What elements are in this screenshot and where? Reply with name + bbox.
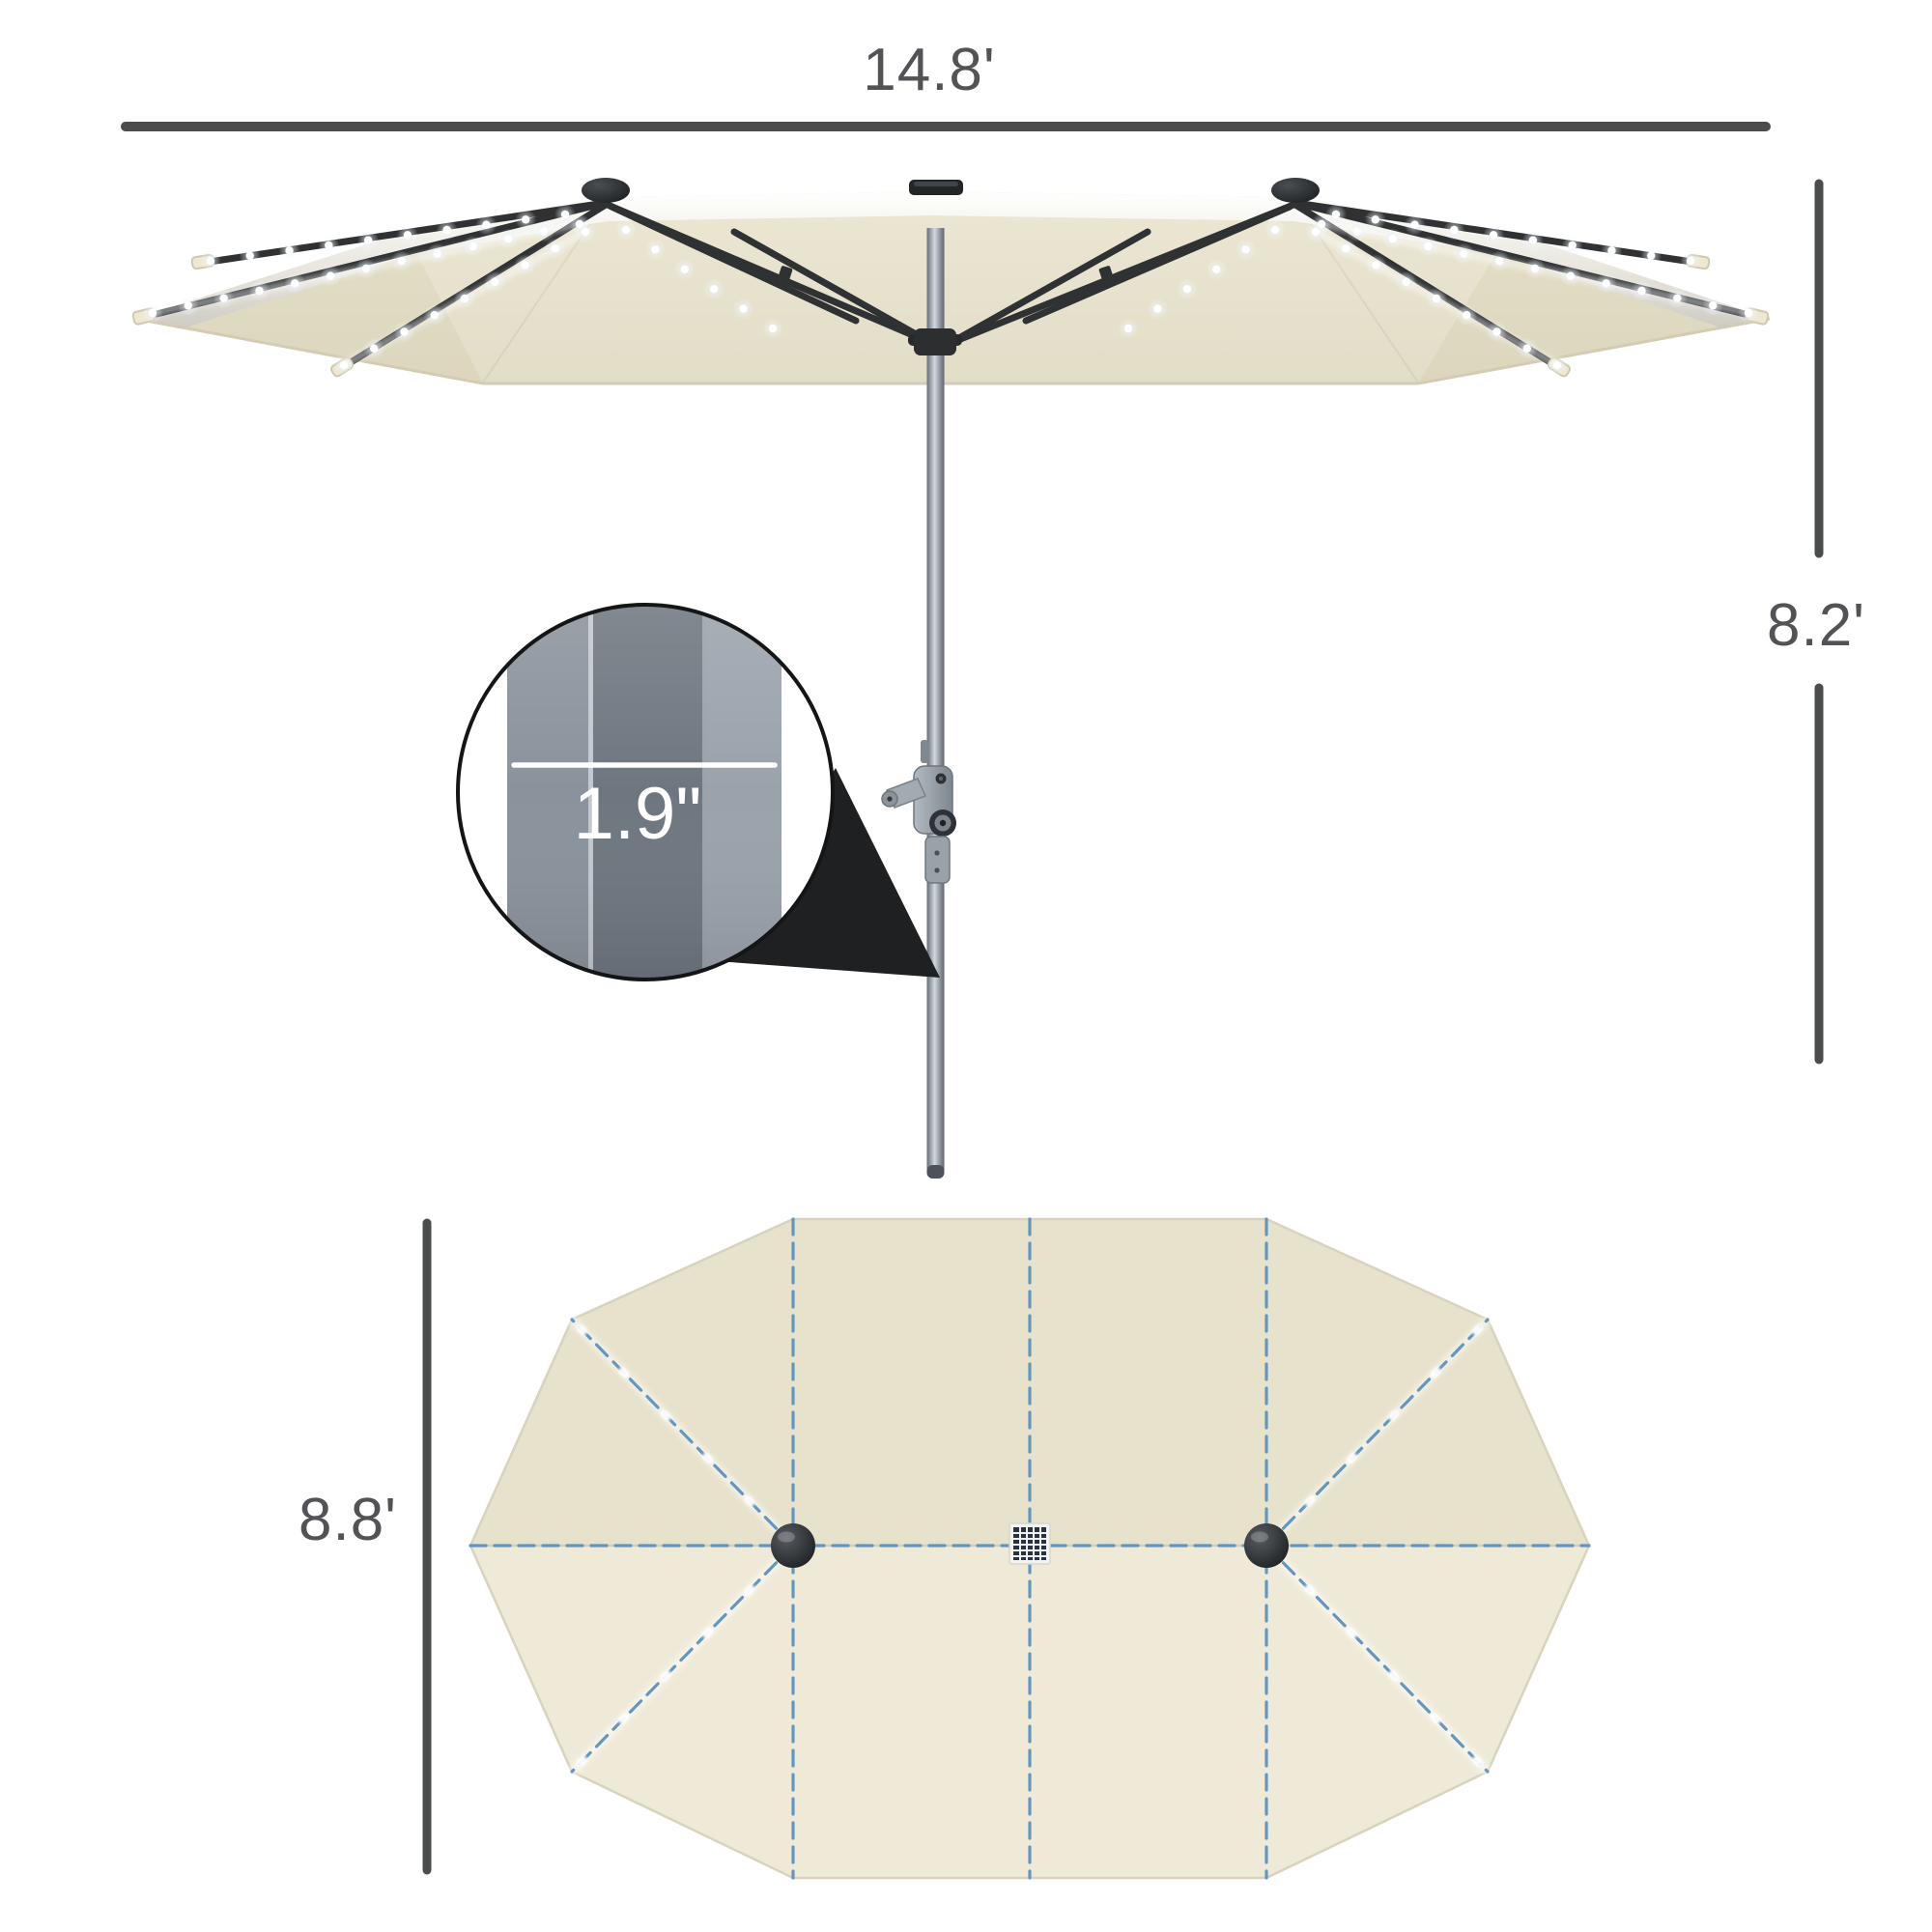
product-dimension-diagram: 14.8' <box>0 0 1932 1932</box>
pole-shaft <box>927 228 945 1173</box>
pole <box>927 228 945 1179</box>
hub-knob-right-highlight <box>1251 1532 1268 1543</box>
pole-bottom-cap <box>927 1165 945 1179</box>
dimension-width-label: 14.8' <box>863 37 996 103</box>
hub-cap-right <box>1271 178 1320 203</box>
dimension-depth: 8.8' <box>298 1223 427 1870</box>
hub-cap-left <box>582 178 630 203</box>
dimension-width: 14.8' <box>126 37 1766 127</box>
dimension-height-label: 8.2' <box>1767 592 1865 659</box>
hub-knob-left-highlight <box>778 1532 795 1543</box>
pole-diameter-label: 1.9" <box>574 773 702 855</box>
solar-panel-icon <box>1009 1523 1050 1564</box>
center-hub <box>908 328 962 355</box>
pole-diameter-callout: 1.9" <box>458 599 940 985</box>
tilt-crank-mechanism <box>882 740 956 883</box>
solar-panel-top-icon <box>909 180 963 195</box>
hub-knob-right <box>1244 1523 1289 1568</box>
hub-knob-left <box>771 1523 815 1568</box>
diagram-canvas: 14.8' <box>0 0 1932 1932</box>
dimension-height: 8.2' <box>1767 184 1865 1060</box>
umbrella-side-view <box>132 178 1770 1179</box>
dimension-depth-label: 8.8' <box>298 1487 397 1553</box>
pole-closeup: 1.9" <box>507 599 781 985</box>
umbrella-top-view <box>470 1219 1589 1878</box>
